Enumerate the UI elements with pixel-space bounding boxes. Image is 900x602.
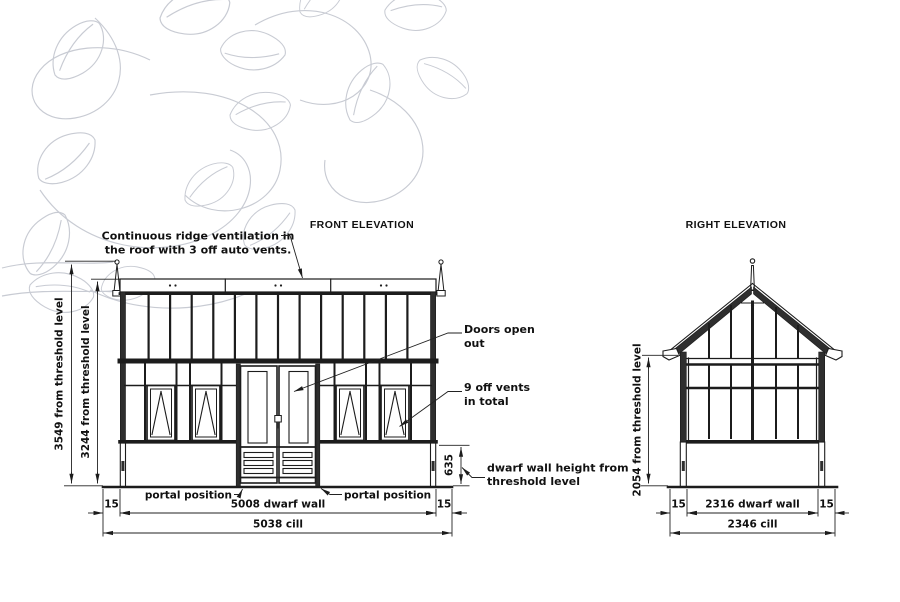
front-elevation-drawing	[103, 260, 452, 487]
front-double-doors	[236, 364, 320, 487]
dim-label-front-cill-width: 5038 cill	[253, 519, 303, 531]
front-upper-glazing-bars	[149, 295, 408, 358]
ridge-vent-note-line2: the roof with 3 off auto vents.	[105, 244, 292, 257]
portal-position-left-label: portal position	[145, 490, 232, 502]
portal-left-leader	[234, 489, 243, 495]
right-gable-glazing-bars	[709, 302, 798, 440]
dwarf-wall-note-line1: dwarf wall height from	[487, 462, 629, 475]
leaf-pattern-decoration	[2, 0, 473, 327]
dim-label-ridge-height: 3244 from threshold level	[80, 305, 92, 458]
right-elevation-title: RIGHT ELEVATION	[686, 219, 787, 231]
dim-label-right-eaves-height: 2054 from threshold level	[632, 343, 644, 496]
dim-right-eaves-height	[641, 355, 678, 486]
front-elevation-title: FRONT ELEVATION	[310, 219, 414, 231]
dwarf-wall-leader	[462, 468, 485, 478]
dwarf-wall-note-line2: threshold level	[487, 475, 580, 488]
dim-ridge-height	[91, 279, 121, 483]
portal-position-right-label: portal position	[344, 490, 431, 502]
drawing-sheet: FRONT ELEVATION RIGHT ELEVATION	[0, 0, 900, 602]
dim-label-right-left-offset: 15	[671, 499, 686, 511]
doors-note-line1: Doors open	[464, 323, 535, 336]
front-right-finial	[437, 260, 445, 296]
dim-label-dwarf-wall-height: 635	[444, 454, 456, 476]
dim-label-right-right-offset: 15	[819, 499, 834, 511]
dim-label-front-right-offset: 15	[437, 499, 452, 511]
dim-label-right-cill-width: 2346 cill	[728, 519, 778, 531]
ridge-vent-note-line1: Continuous ridge ventilation in	[102, 230, 295, 243]
vents-note-line1: 9 off vents	[464, 381, 531, 394]
vent-window	[336, 386, 364, 441]
dim-label-front-left-offset: 15	[104, 499, 119, 511]
elevation-drawing-canvas: FRONT ELEVATION RIGHT ELEVATION	[0, 0, 900, 602]
dim-label-front-dwarf-wall-width: 5008 dwarf wall	[231, 499, 326, 511]
dim-label-right-dwarf-wall-width: 2316 dwarf wall	[705, 499, 800, 511]
vents-note-line2: in total	[464, 395, 509, 408]
dim-label-overall-height: 3549 from threshold level	[54, 297, 66, 450]
vent-window	[147, 386, 175, 441]
vent-window	[192, 386, 220, 441]
front-ridge-vent-band	[120, 279, 436, 294]
right-elevation-drawing	[663, 259, 842, 487]
front-vent-windows	[147, 386, 409, 441]
portal-right-leader	[321, 489, 342, 495]
vent-window	[381, 386, 409, 441]
doors-note-line2: out	[464, 337, 485, 350]
